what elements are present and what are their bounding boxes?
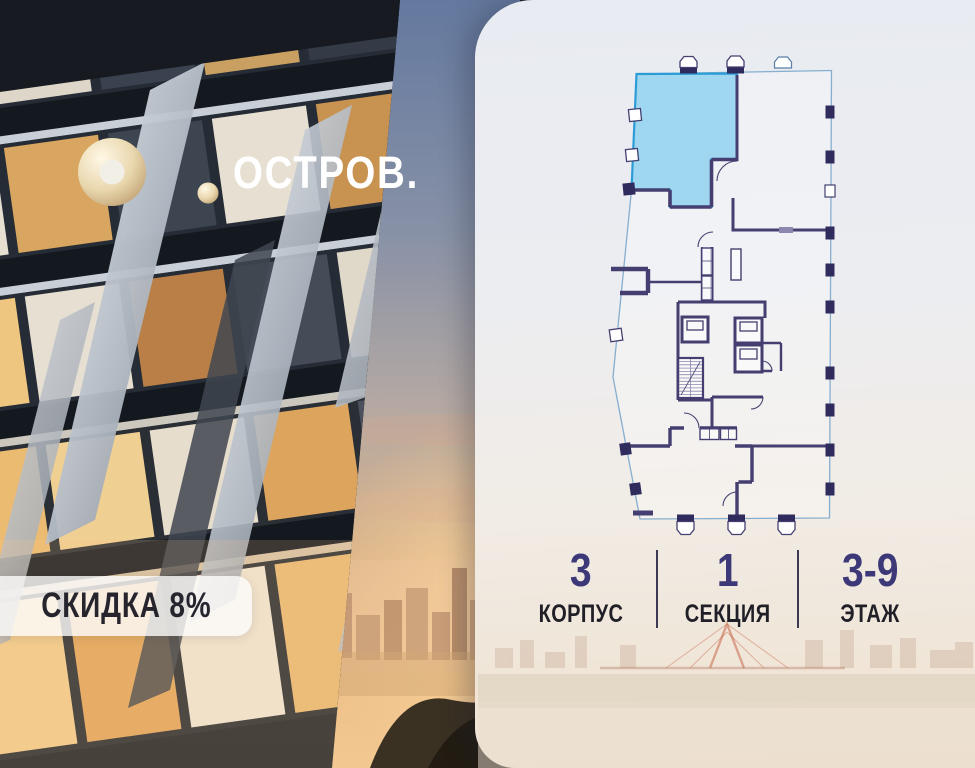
- listing-banner: ОСТРОВ. СКИДКА 8%: [0, 0, 975, 768]
- floor-plan-drawing: [609, 56, 835, 535]
- floor-label: ЭТАЖ: [840, 602, 899, 627]
- discount-badge: СКИДКА 8%: [0, 576, 252, 636]
- info-section: 1 СЕКЦИЯ: [658, 547, 797, 627]
- building-value: 3: [570, 547, 592, 593]
- brand-logo: ОСТРОВ.: [78, 138, 419, 206]
- info-building: 3 КОРПУС: [475, 547, 656, 627]
- floor-value: 3-9: [842, 547, 899, 593]
- discount-badge-label: СКИДКА 8%: [41, 586, 211, 626]
- card-city-backdrop: [478, 624, 975, 768]
- building-label: КОРПУС: [538, 602, 623, 627]
- apartment-info: 3 КОРПУС 1 СЕКЦИЯ 3-9 ЭТАЖ: [475, 547, 975, 628]
- ostrov-dot-icon: [198, 183, 219, 204]
- brand-logo-text: ОСТРОВ.: [233, 147, 419, 198]
- section-label: СЕКЦИЯ: [685, 602, 771, 627]
- building-photo: ОСТРОВ. СКИДКА 8%: [0, 0, 520, 768]
- apartment-card: 3 КОРПУС 1 СЕКЦИЯ 3-9 ЭТАЖ: [475, 0, 975, 768]
- info-floor: 3-9 ЭТАЖ: [799, 547, 975, 627]
- floor-plan: [475, 0, 975, 768]
- stairwell: [678, 358, 703, 398]
- section-value: 1: [717, 547, 739, 593]
- building-photo-art: ОСТРОВ.: [0, 0, 520, 768]
